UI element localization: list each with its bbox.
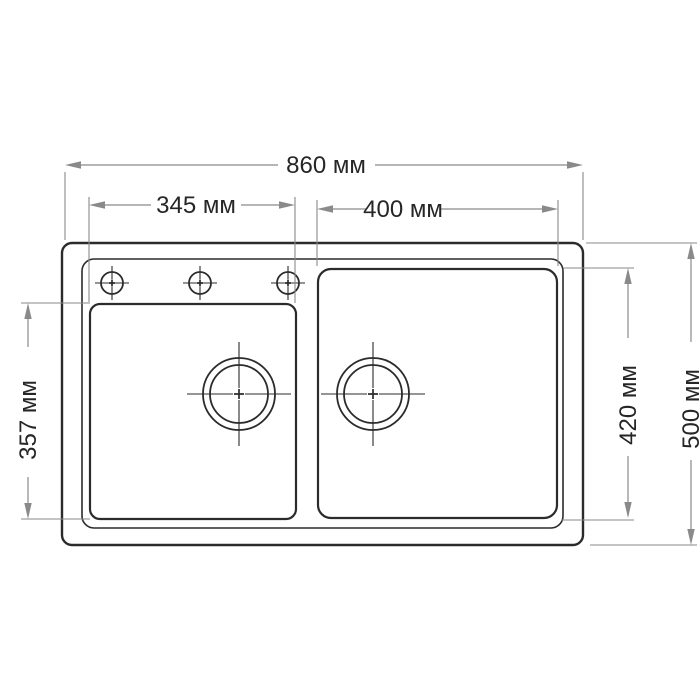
arrow-down-icon [687, 529, 694, 545]
dim-right-bowl-width: 400 мм [317, 196, 558, 266]
arrow-right-icon [567, 161, 583, 168]
sink-technical-drawing: 860 мм 345 мм 400 мм 357 мм 420 мм [0, 0, 700, 700]
arrow-up-icon [687, 243, 694, 259]
arrow-right-icon [542, 205, 558, 212]
arrow-left-icon [89, 201, 105, 208]
faucet-holes [95, 266, 305, 300]
arrow-left-icon [65, 161, 81, 168]
arrow-down-icon [624, 502, 631, 518]
arrow-down-icon [24, 503, 31, 519]
faucet-hole-2 [183, 266, 217, 300]
arrow-right-icon [279, 201, 295, 208]
left-drain-center-mark [234, 389, 244, 399]
dim-label-left-bowl-width: 345 мм [156, 192, 236, 219]
dim-right-bowl-depth: 420 мм [562, 268, 642, 520]
dim-left-bowl-width: 345 мм [89, 192, 295, 303]
faucet-hole-1 [95, 266, 129, 300]
drawing-canvas: 860 мм 345 мм 400 мм 357 мм 420 мм [0, 0, 700, 700]
dim-label-left-bowl-depth: 357 мм [15, 380, 42, 460]
arrow-up-icon [624, 268, 631, 284]
left-drain [187, 342, 291, 446]
dim-left-bowl-depth: 357 мм [15, 303, 90, 519]
faucet-hole-3 [271, 266, 305, 300]
dim-overall-depth: 500 мм [586, 243, 700, 545]
dim-label-right-bowl-depth: 420 мм [615, 365, 642, 445]
right-drain-center-mark [368, 389, 378, 399]
dim-label-overall-width: 860 мм [286, 152, 366, 179]
dim-label-right-bowl-width: 400 мм [363, 196, 443, 223]
left-bowl [90, 304, 296, 519]
arrow-up-icon [24, 303, 31, 319]
dim-label-overall-depth: 500 мм [678, 369, 700, 449]
right-drain [321, 342, 425, 446]
dim-overall-width-extension-lines [65, 172, 583, 240]
arrow-left-icon [317, 205, 333, 212]
dim-overall-width: 860 мм [65, 152, 583, 240]
